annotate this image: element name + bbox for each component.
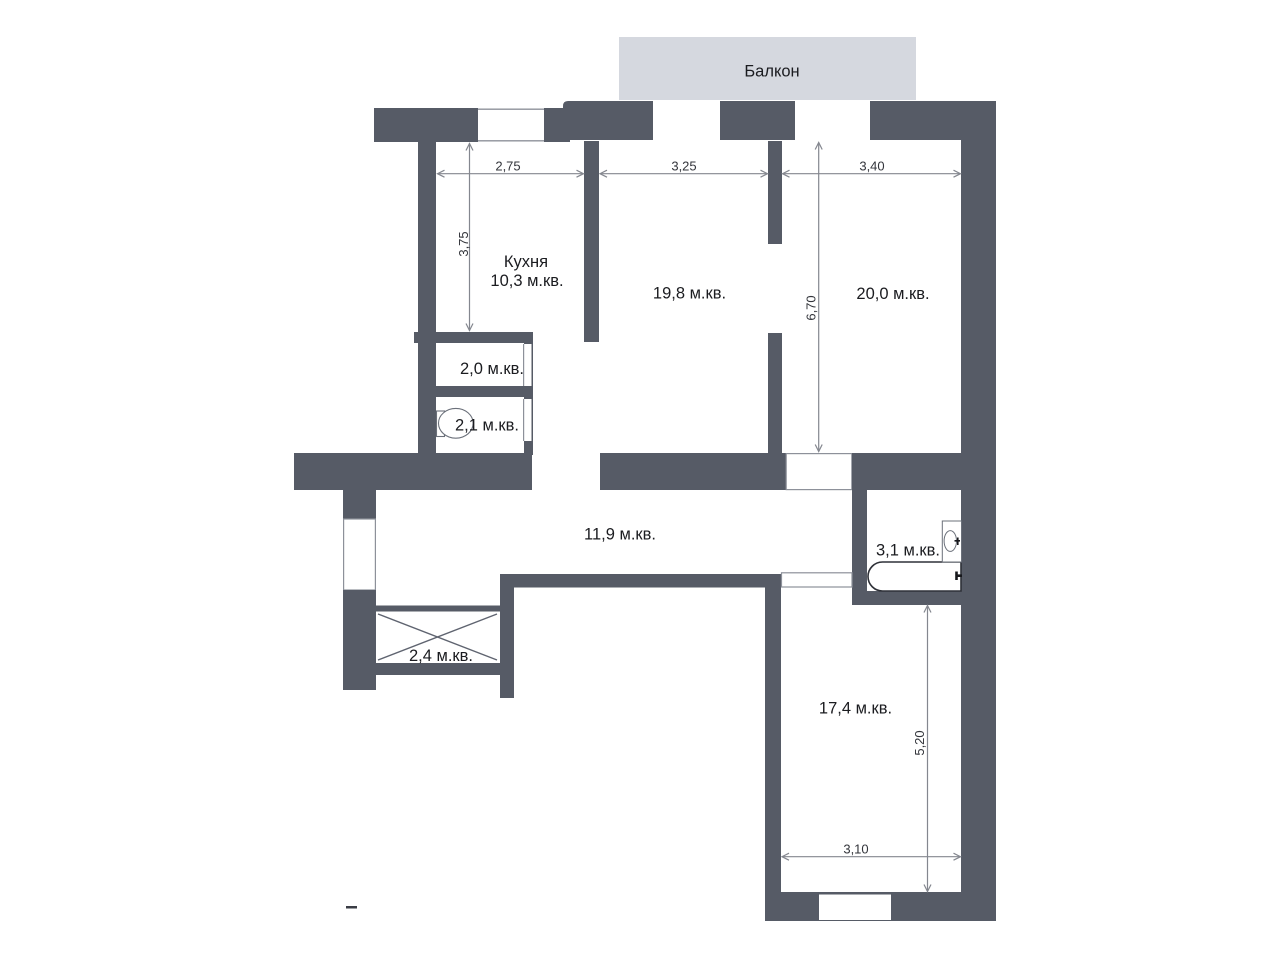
svg-text:Балкон: Балкон (744, 63, 799, 81)
svg-text:2,1 м.кв.: 2,1 м.кв. (455, 417, 519, 435)
svg-text:3,25: 3,25 (671, 159, 696, 174)
svg-text:2,0 м.кв.: 2,0 м.кв. (460, 360, 524, 378)
svg-text:3,10: 3,10 (843, 842, 868, 857)
svg-text:19,8 м.кв.: 19,8 м.кв. (653, 284, 726, 302)
svg-text:5,20: 5,20 (912, 730, 927, 755)
svg-text:2,75: 2,75 (495, 159, 520, 174)
svg-text:3,40: 3,40 (859, 159, 884, 174)
svg-text:3,75: 3,75 (456, 231, 471, 256)
svg-text:10,3 м.кв.: 10,3 м.кв. (490, 272, 563, 290)
svg-text:6,70: 6,70 (804, 295, 819, 320)
svg-text:20,0 м.кв.: 20,0 м.кв. (856, 285, 929, 303)
svg-text:17,4 м.кв.: 17,4 м.кв. (819, 700, 892, 718)
svg-text:Кухня: Кухня (504, 253, 548, 271)
svg-text:2,4 м.кв.: 2,4 м.кв. (409, 647, 473, 665)
svg-text:3,1 м.кв.: 3,1 м.кв. (876, 542, 940, 560)
svg-text:11,9 м.кв.: 11,9 м.кв. (584, 526, 656, 544)
